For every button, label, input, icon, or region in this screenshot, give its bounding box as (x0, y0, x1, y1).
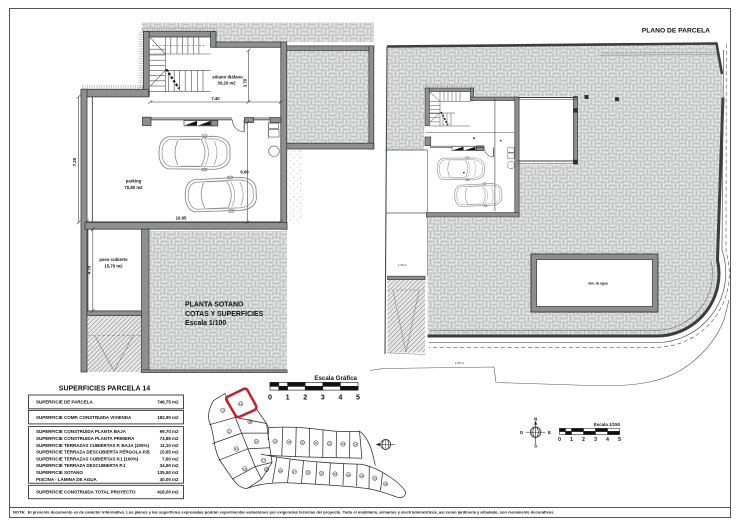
svg-text:SUPERFICIE DE PARCELA: SUPERFICIE DE PARCELA (36, 400, 93, 405)
svg-text:NOTA: El presente documento e: NOTA: El presente documento es de caráct… (13, 509, 555, 514)
svg-text:paso cubierto: paso cubierto (99, 257, 128, 262)
svg-text:32: 32 (360, 474, 364, 478)
svg-text:O: O (520, 430, 524, 435)
svg-text:2: 2 (582, 437, 585, 443)
svg-text:30: 30 (333, 472, 337, 476)
svg-text:1,05 m: 1,05 m (398, 263, 408, 267)
svg-text:SUPERFICIES PARCELA 14: SUPERFICIES PARCELA 14 (59, 386, 151, 393)
svg-text:3: 3 (594, 437, 597, 443)
svg-text:7,60 m2: 7,60 m2 (162, 456, 179, 461)
svg-text:Escala Gráfica: Escala Gráfica (314, 375, 357, 382)
svg-text:22: 22 (328, 442, 332, 446)
svg-text:10: 10 (243, 467, 247, 471)
svg-text:4: 4 (338, 393, 342, 402)
svg-text:28: 28 (306, 471, 310, 475)
svg-text:E: E (548, 430, 551, 435)
svg-text:2: 2 (303, 393, 307, 402)
svg-text:4.70: 4.70 (87, 265, 92, 274)
svg-text:4: 4 (606, 437, 609, 443)
svg-text:14: 14 (239, 402, 243, 406)
svg-text:746,75 m2: 746,75 m2 (157, 400, 179, 405)
svg-text:1,05 m: 1,05 m (455, 361, 465, 365)
svg-text:15,65 m2: 15,65 m2 (160, 450, 179, 455)
svg-text:1: 1 (570, 437, 573, 443)
svg-text:5: 5 (618, 437, 621, 443)
svg-text:17: 17 (262, 459, 266, 463)
svg-text:135,50 m2: 135,50 m2 (157, 470, 179, 475)
svg-text:SUPERFICIE TERRAZAS CUBIERTAS: SUPERFICIE TERRAZAS CUBIERTAS P.1 (100%) (36, 456, 139, 461)
svg-text:Escala 1/100: Escala 1/100 (185, 320, 226, 327)
svg-text:21: 21 (314, 441, 318, 445)
svg-text:33: 33 (373, 476, 377, 480)
svg-text:Escala 1/150: Escala 1/150 (594, 422, 621, 427)
svg-text:31: 31 (347, 473, 351, 477)
svg-text:SUPERFICIE CONSTRUIDA TOTAL PR: SUPERFICIE CONSTRUIDA TOTAL PROYECTO (36, 490, 136, 495)
svg-text:15: 15 (248, 420, 252, 424)
svg-text:12: 12 (228, 429, 232, 433)
svg-text:418,00 m2: 418,00 m2 (157, 490, 179, 495)
svg-text:PLANTA SOTANO: PLANTA SOTANO (185, 302, 244, 309)
svg-text:10.95: 10.95 (176, 216, 187, 221)
svg-text:1: 1 (286, 393, 290, 402)
svg-text:6.00: 6.00 (240, 170, 249, 175)
svg-text:40,00 m2: 40,00 m2 (160, 477, 179, 482)
svg-text:23: 23 (341, 442, 345, 446)
svg-text:30,20 m2: 30,20 m2 (217, 81, 236, 86)
svg-text:27: 27 (293, 470, 297, 474)
svg-text:PISCINA - LÁMINA DE AGUA: PISCINA - LÁMINA DE AGUA (36, 476, 97, 482)
svg-text:SUPERFICIE CONSTRUIDA PLANTA P: SUPERFICIE CONSTRUIDA PLANTA PRIMERA (36, 436, 135, 441)
svg-text:24: 24 (354, 442, 358, 446)
svg-text:11,10 m2: 11,10 m2 (160, 443, 179, 448)
svg-text:25: 25 (265, 468, 269, 472)
svg-text:0: 0 (558, 437, 561, 443)
svg-text:lám. de agua: lám. de agua (588, 282, 608, 286)
svg-text:7.40: 7.40 (211, 96, 220, 101)
svg-text:26: 26 (279, 469, 283, 473)
svg-text:18: 18 (273, 439, 277, 443)
svg-text:sótano diáfano: sótano diáfano (212, 75, 243, 80)
svg-text:70,80 m2: 70,80 m2 (124, 185, 143, 190)
svg-text:16: 16 (255, 440, 259, 444)
svg-text:7.25: 7.25 (72, 157, 77, 166)
svg-text:S: S (534, 444, 537, 449)
svg-text:20: 20 (301, 441, 305, 445)
svg-text:0: 0 (268, 393, 272, 402)
svg-text:SUPERFICIE TERRAZAS CUBIERTAS: SUPERFICIE TERRAZAS CUBIERTAS P. BAJA (1… (36, 443, 149, 448)
svg-text:182,90 m2: 182,90 m2 (157, 415, 179, 420)
svg-text:13: 13 (221, 408, 225, 412)
svg-text:SUPERFICIE SOTANO: SUPERFICIE SOTANO (36, 470, 83, 475)
svg-text:73,85 m2: 73,85 m2 (160, 436, 179, 441)
svg-text:15,70 m2: 15,70 m2 (104, 264, 123, 269)
svg-text:3.70: 3.70 (242, 78, 247, 87)
svg-text:11: 11 (235, 447, 238, 451)
svg-text:COTAS Y SUPERFICIES: COTAS Y SUPERFICIES (185, 311, 264, 318)
svg-text:34: 34 (384, 482, 388, 486)
svg-text:PLANO DE PARCELA: PLANO DE PARCELA (642, 28, 710, 35)
svg-text:3: 3 (321, 393, 325, 402)
svg-text:SUPERFICIE CONSTRUIDA PLANTA B: SUPERFICIE CONSTRUIDA PLANTA BAJA (36, 429, 127, 434)
svg-text:19: 19 (287, 440, 291, 444)
svg-text:parking: parking (126, 179, 142, 184)
svg-text:5: 5 (356, 393, 360, 402)
svg-text:SUPERFICIE TERRAZA DESCUBIERTA: SUPERFICIE TERRAZA DESCUBIERTA P.1 (36, 463, 126, 468)
svg-text:SUPERFICIE COMP. CONSTRUIDA VI: SUPERFICIE COMP. CONSTRUIDA VIVIENDA (36, 415, 132, 420)
svg-text:29: 29 (320, 471, 324, 475)
svg-text:99,70 m2: 99,70 m2 (160, 429, 179, 434)
svg-text:N: N (534, 417, 537, 422)
svg-text:SUPERFICIE TERRAZA DESCUBIERTA: SUPERFICIE TERRAZA DESCUBIERTA PÉRGOLA P… (36, 448, 151, 455)
svg-text:34,60 m2: 34,60 m2 (160, 463, 179, 468)
